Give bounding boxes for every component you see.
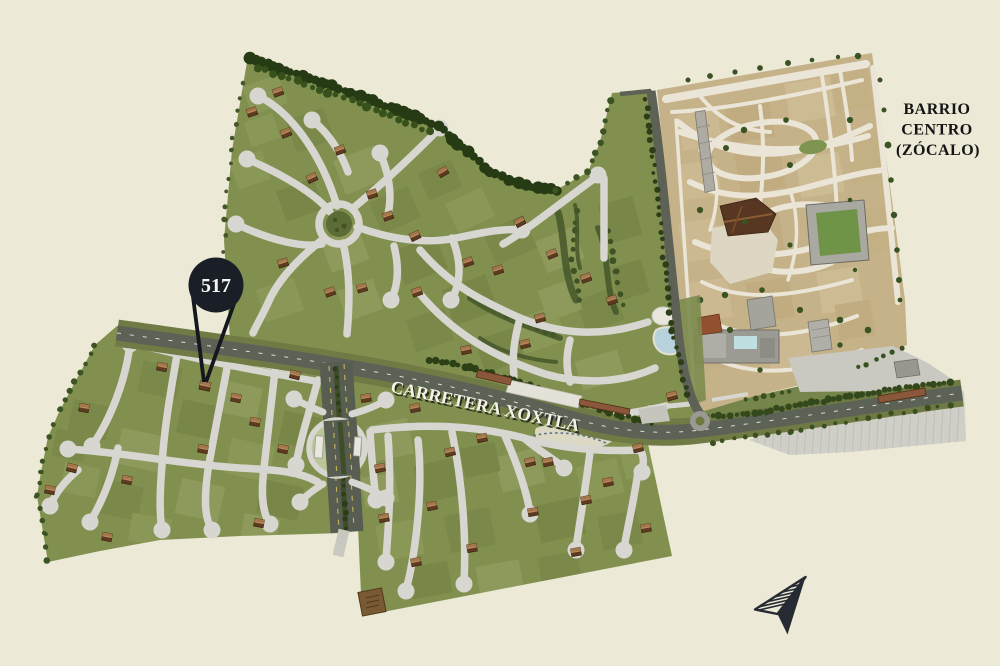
- svg-text:BARRIO: BARRIO: [903, 101, 970, 118]
- svg-text:CENTRO: CENTRO: [901, 122, 972, 139]
- svg-text:517: 517: [201, 275, 231, 297]
- svg-text:(ZÓCALO): (ZÓCALO): [896, 140, 980, 159]
